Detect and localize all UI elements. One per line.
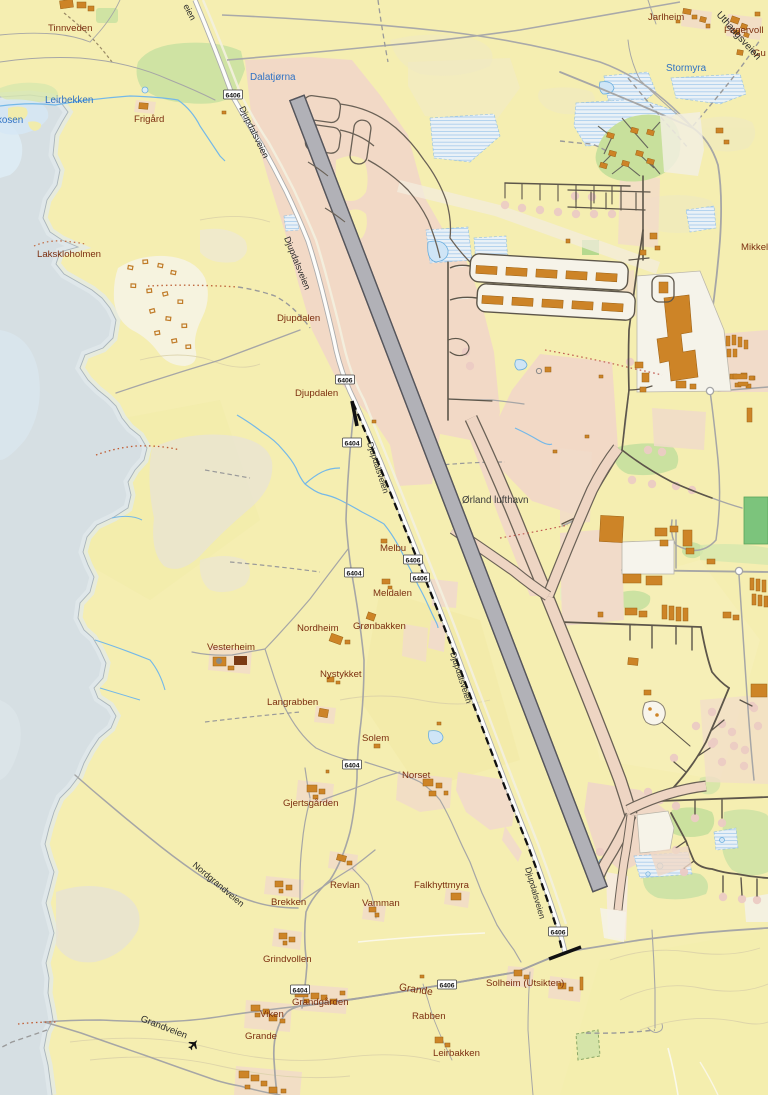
svg-text:Solem: Solem [362, 733, 389, 744]
svg-text:Grandgården: Grandgården [292, 997, 349, 1008]
svg-text:Jarlheim: Jarlheim [648, 12, 684, 23]
svg-text:Lakskloholmen: Lakskloholmen [37, 249, 101, 260]
svg-text:Dalatjørna: Dalatjørna [250, 72, 296, 83]
svg-text:6406: 6406 [405, 558, 420, 565]
svg-text:Mikkelha: Mikkelha [741, 242, 768, 253]
svg-text:Langrabben: Langrabben [267, 697, 318, 708]
svg-text:6406: 6406 [337, 378, 352, 385]
svg-text:6404: 6404 [292, 988, 307, 995]
svg-text:6404: 6404 [344, 763, 359, 770]
svg-text:Nystykket: Nystykket [320, 669, 362, 680]
svg-text:Revlan: Revlan [330, 880, 360, 891]
svg-text:Vesterheim: Vesterheim [207, 642, 255, 653]
svg-text:Djupdalen: Djupdalen [277, 313, 320, 324]
svg-text:6404: 6404 [344, 441, 359, 448]
svg-text:Frigård: Frigård [134, 114, 164, 125]
svg-text:Brekken: Brekken [271, 897, 306, 908]
svg-text:6404: 6404 [346, 571, 361, 578]
svg-text:Rabben: Rabben [412, 1011, 446, 1022]
svg-text:Gjertsgården: Gjertsgården [283, 798, 338, 809]
svg-text:Grande: Grande [245, 1031, 277, 1042]
svg-text:Grindvollen: Grindvollen [263, 954, 312, 965]
svg-text:Viken: Viken [260, 1009, 284, 1020]
svg-text:Stormyra: Stormyra [666, 63, 707, 74]
svg-text:Meldalen: Meldalen [373, 588, 412, 599]
svg-text:Norset: Norset [402, 770, 431, 781]
svg-text:Falkhyttmyra: Falkhyttmyra [414, 880, 470, 891]
svg-text:Grønbakken: Grønbakken [353, 621, 406, 632]
svg-text:Melbu: Melbu [380, 543, 406, 554]
svg-text:Leirbekken: Leirbekken [45, 95, 93, 106]
svg-text:6406: 6406 [225, 93, 240, 100]
svg-text:skosen: skosen [0, 115, 23, 126]
svg-text:6406: 6406 [439, 983, 454, 990]
svg-text:6406: 6406 [412, 576, 427, 583]
svg-text:Djupdalen: Djupdalen [295, 388, 338, 399]
svg-text:6406: 6406 [550, 930, 565, 937]
svg-text:Ørland lufthavn: Ørland lufthavn [462, 495, 528, 506]
svg-text:Tinnveden: Tinnveden [48, 23, 92, 34]
svg-text:Nordheim: Nordheim [297, 623, 339, 634]
svg-text:Vamman: Vamman [362, 898, 400, 909]
svg-text:Leirbakken: Leirbakken [433, 1048, 480, 1059]
svg-text:Solheim (Utsikten): Solheim (Utsikten) [486, 978, 564, 989]
